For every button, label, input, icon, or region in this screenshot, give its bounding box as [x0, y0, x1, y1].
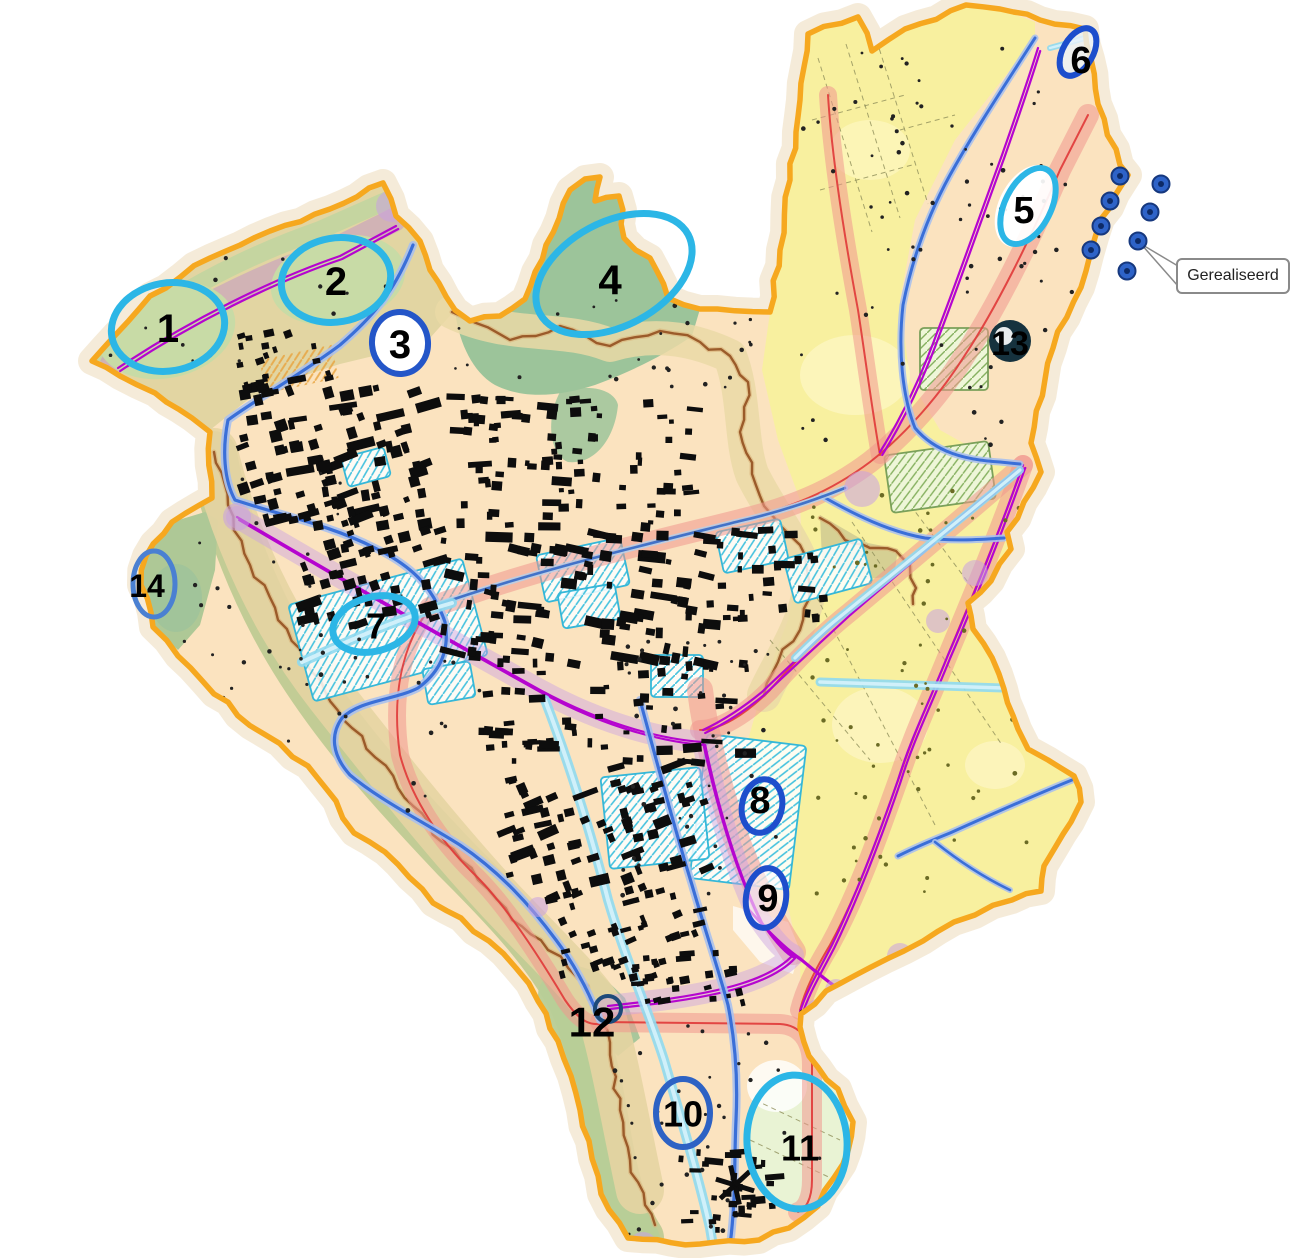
marker-number-11: 11 [781, 1128, 819, 1169]
marker-number-14: 14 [129, 568, 165, 604]
realized-dot [1142, 204, 1159, 221]
realized-dot [1093, 218, 1110, 235]
marker-number-13: 13 [991, 325, 1029, 363]
marker-number-2: 2 [325, 260, 347, 304]
realized-dot [1112, 168, 1129, 185]
marker-number-8: 8 [749, 780, 770, 822]
map-canvas: 1234567891011121314 [0, 0, 1292, 1258]
marker-number-10: 10 [663, 1094, 703, 1135]
marker-number-9: 9 [757, 878, 778, 920]
marker-number-1: 1 [157, 307, 179, 351]
gerealiseerd-label: Gerealiseerd [1187, 267, 1279, 285]
map-marker-13: 13 [989, 320, 1031, 363]
realized-dot [1153, 176, 1170, 193]
realized-dot [1102, 193, 1119, 210]
marker-number-3: 3 [389, 323, 411, 367]
callout-pointer [1141, 244, 1178, 286]
realized-dot [1083, 242, 1100, 259]
map-marker-3: 3 [369, 310, 430, 377]
realized-dot [1130, 233, 1147, 250]
realized-dot [1119, 263, 1136, 280]
marker-number-4: 4 [598, 257, 622, 304]
marker-number-5: 5 [1013, 190, 1034, 232]
marker-number-6: 6 [1070, 40, 1091, 82]
map-marker-12: 12 [569, 996, 621, 1046]
marker-number-7: 7 [366, 606, 386, 647]
marker-number-12: 12 [569, 999, 616, 1046]
gerealiseerd-callout: Gerealiseerd [1176, 258, 1290, 294]
planning-map: 1234567891011121314 Gerealiseerd [0, 0, 1292, 1258]
